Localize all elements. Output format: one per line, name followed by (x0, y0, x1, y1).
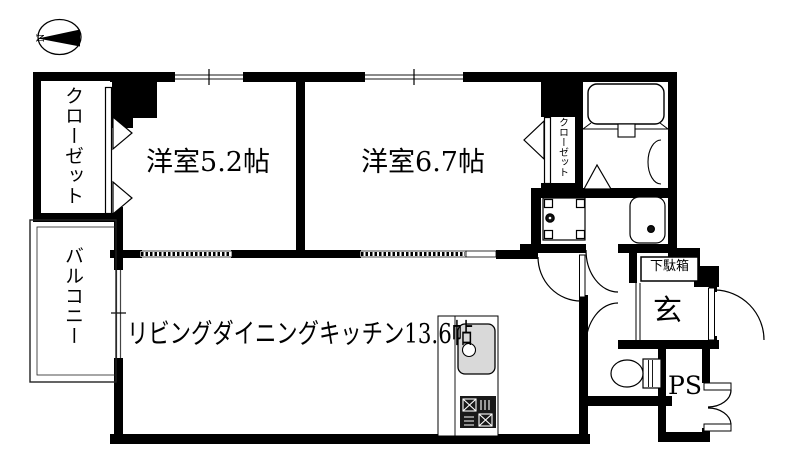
entrance-step (636, 283, 640, 341)
bath-faucet (618, 124, 635, 137)
washroom-door-arc (586, 250, 618, 292)
washing-machine-pan (543, 198, 585, 240)
closet-door-track (545, 118, 551, 184)
window-bedroom2 (365, 69, 463, 85)
label-shoe-cabinet: 下駄箱 (641, 260, 698, 274)
compass: N (36, 20, 81, 55)
label-closet-bedroom2: クローゼット (556, 117, 567, 185)
toilet (611, 359, 661, 388)
floor-plan: N クローゼット バルコニー 洋室5.2帖 洋室6.7帖 クローゼット リビング… (0, 0, 800, 459)
compass-north-label: N (36, 33, 47, 42)
entrance-door-leaf (709, 288, 715, 340)
toilet-door-arc (586, 303, 618, 345)
label-pipe-space: PS (667, 373, 703, 399)
window-bedroom1 (175, 69, 243, 85)
basin-drain-icon (648, 226, 655, 233)
gas-stove (460, 396, 496, 428)
windows (111, 69, 463, 358)
window-balcony-door (111, 270, 126, 358)
ps-door-arc (708, 390, 731, 407)
ps-door-arc (708, 408, 731, 424)
washbasin (630, 197, 665, 243)
label-bedroom1: 洋室5.2帖 (118, 149, 298, 177)
bathtub (588, 84, 664, 124)
closet-door-track (106, 88, 112, 214)
label-entrance: 玄 (653, 295, 682, 325)
label-closet-left: クローゼット (62, 86, 82, 216)
ps-door-leaf (704, 383, 731, 390)
ldk-door-arc (538, 257, 581, 301)
entrance-door-arc (715, 290, 764, 340)
toilet-tank (643, 359, 661, 388)
washroom (543, 197, 665, 243)
label-ldk: リビングダイニングキッチン13.6帖 (127, 321, 473, 349)
ps-door-leaf (704, 424, 731, 431)
bathroom-folding-door-icon (584, 165, 611, 189)
toilet-bowl (611, 360, 643, 387)
label-balcony: バルコニー (62, 246, 82, 380)
walls (33, 72, 719, 444)
ldk-door-leaf (580, 255, 586, 297)
bathroom-arc (648, 140, 661, 184)
label-bedroom2: 洋室6.7帖 (303, 149, 543, 177)
